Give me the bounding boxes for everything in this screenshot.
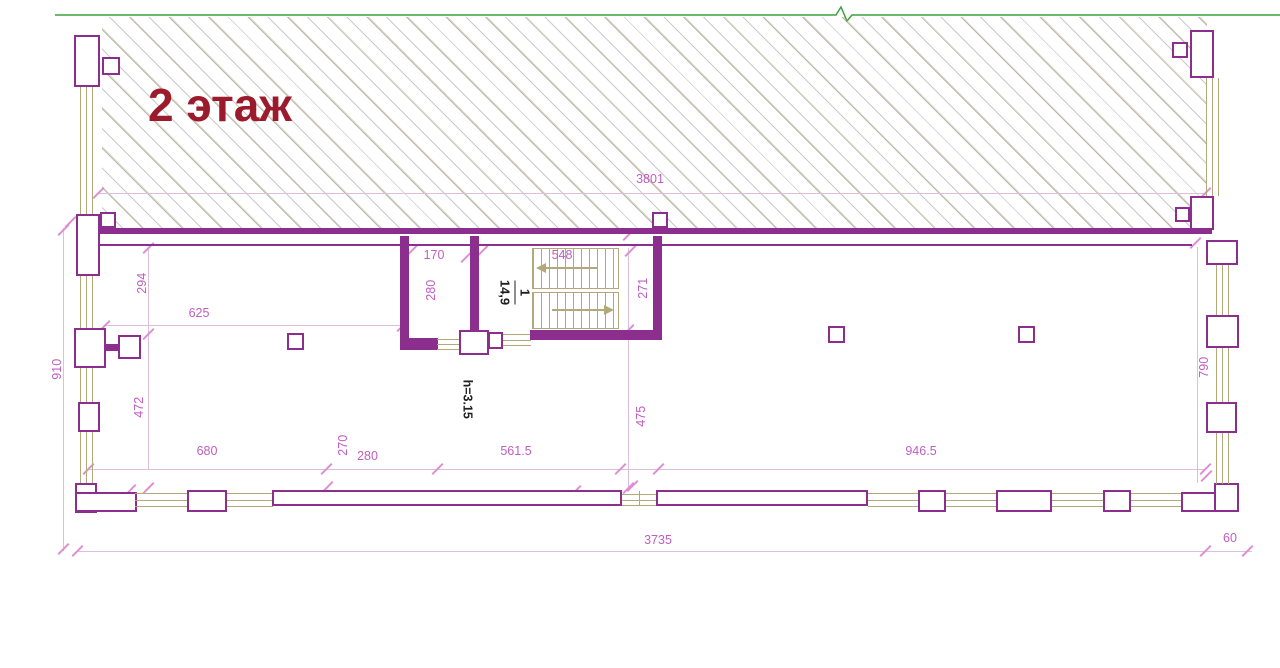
- corner-pier: [1190, 30, 1214, 78]
- dim-stair-anteroom-width: 170: [409, 249, 459, 262]
- floor-title: 2 этаж: [148, 82, 292, 128]
- dim-left-lower: 472: [133, 387, 146, 427]
- pier: [1206, 402, 1237, 433]
- dim-stair-lower-height: 475: [635, 396, 648, 436]
- corner-pier: [1214, 483, 1239, 512]
- pilaster: [1172, 42, 1188, 58]
- top-wall-inner-line: [98, 244, 1192, 246]
- stair-direction-line: [545, 267, 597, 269]
- dim-top-total: 3801: [610, 173, 690, 186]
- pier: [187, 490, 227, 512]
- room-number: 1: [515, 281, 533, 304]
- dim-right-inner-height: 790: [1198, 347, 1211, 387]
- window: [1131, 493, 1181, 507]
- dim-bottom-seg-3: 280: [340, 450, 395, 463]
- pier: [78, 402, 100, 432]
- dim-tick: [64, 216, 76, 228]
- dim-tick: [1189, 237, 1201, 249]
- stair-arrow-left: [536, 263, 546, 273]
- dim-line-bottom: [76, 551, 1252, 552]
- window: [1052, 493, 1103, 507]
- dim-left-upper: 294: [136, 263, 149, 303]
- dim-bottom-seg-4: 561.5: [481, 445, 551, 458]
- top-wall: [78, 228, 1212, 234]
- window: [227, 493, 273, 507]
- pier: [996, 490, 1052, 512]
- top-wall-pilaster: [100, 212, 116, 228]
- dim-bottom-seg-1: 680: [172, 445, 242, 458]
- dim-left-room-width: 625: [164, 307, 234, 320]
- pier: [74, 328, 106, 368]
- pier: [1206, 315, 1239, 348]
- dim-line-625: [104, 325, 404, 326]
- pier: [76, 214, 100, 276]
- window: [1216, 265, 1229, 315]
- pilaster: [488, 332, 503, 349]
- pier: [1206, 240, 1238, 265]
- window: [80, 432, 93, 484]
- corner-pier: [74, 35, 100, 87]
- stair-wall: [530, 330, 662, 340]
- dim-line-stair: [628, 248, 629, 489]
- stair-direction-line: [552, 309, 604, 311]
- top-wall-pilaster: [652, 212, 668, 228]
- pilaster: [118, 335, 141, 359]
- window: [868, 493, 918, 507]
- window: [80, 368, 93, 402]
- window: [80, 87, 93, 214]
- column: [287, 333, 304, 350]
- column: [828, 326, 845, 343]
- window: [80, 276, 93, 328]
- dim-bottom-total: 3735: [618, 534, 698, 547]
- dim-stair-flight-width: 548: [527, 249, 597, 262]
- pilaster: [1175, 207, 1190, 222]
- dim-line-interior: [88, 469, 1205, 470]
- window: [946, 493, 996, 507]
- wall-segment: [272, 490, 622, 506]
- corner-pier: [75, 492, 137, 512]
- dim-bottom-seg-5: 946.5: [886, 445, 956, 458]
- door-jamb: [639, 491, 640, 506]
- wall-segment: [656, 490, 868, 506]
- dim-stair-upper-height: 271: [637, 268, 650, 308]
- pier: [1190, 196, 1214, 230]
- dim-left-outer-height: 910: [51, 349, 64, 389]
- dim-line-top: [98, 193, 1205, 194]
- room-label: 1 14,9: [498, 275, 533, 311]
- window: [135, 493, 188, 507]
- dim-bottom-right-offset: 60: [1208, 532, 1252, 545]
- stair-wall: [400, 236, 409, 350]
- door-opening: [503, 334, 531, 346]
- ceiling-height-label: h=3.15: [461, 379, 474, 419]
- pilaster: [102, 57, 120, 75]
- stair-wall: [400, 338, 438, 350]
- dim-line-left: [63, 228, 64, 551]
- pier: [918, 490, 946, 512]
- stair-arrow-right: [604, 305, 614, 315]
- floor-plan: 2 этаж: [0, 0, 1280, 668]
- dim-stair-anteroom-height: 280: [425, 270, 438, 310]
- window: [1206, 78, 1219, 196]
- pier: [459, 330, 489, 355]
- stair-wall: [470, 236, 479, 332]
- pier-stub: [106, 344, 118, 351]
- column: [1018, 326, 1035, 343]
- door-opening: [437, 339, 461, 350]
- dim-tick: [624, 245, 636, 257]
- pier: [1103, 490, 1131, 512]
- stair-wall: [653, 236, 662, 340]
- room-area: 14,9: [498, 275, 515, 311]
- window: [1216, 433, 1229, 484]
- window: [1216, 348, 1229, 402]
